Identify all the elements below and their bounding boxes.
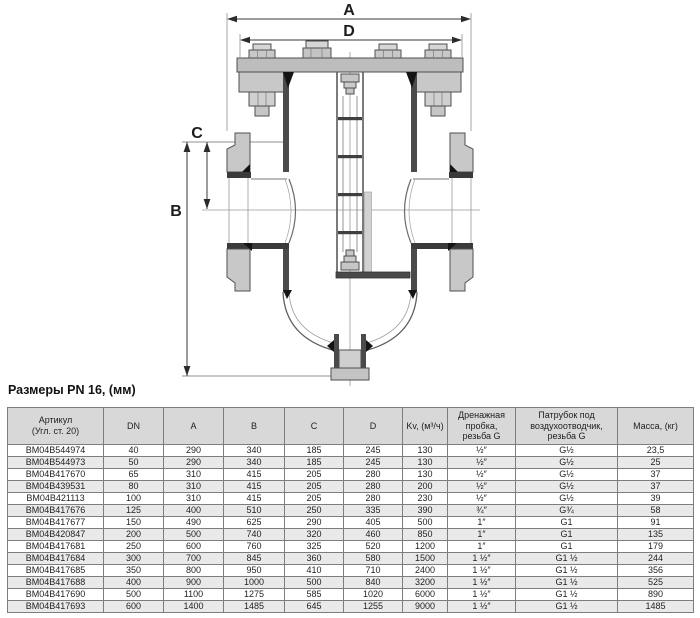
article-cell: BM04B417670 [8,469,104,481]
article-cell: BM04B420847 [8,529,104,541]
value-cell: 6000 [403,589,448,601]
table-row: BM04B41768430070084536058015001 ½″G1 ½24… [8,553,694,565]
value-cell: 135 [618,529,694,541]
value-cell: 1″ [448,529,516,541]
value-cell: 244 [618,553,694,565]
value-cell: 1000 [224,577,285,589]
value-cell: 710 [344,565,403,577]
value-cell: 185 [285,457,344,469]
dimensions-table: Артикул (Угл. ст. 20)DNABCDKv, (м³/ч)Дре… [7,407,694,613]
column-header: C [285,408,344,445]
value-cell: 1100 [164,589,224,601]
value-cell: 500 [285,577,344,589]
value-cell: 600 [164,541,224,553]
value-cell: 185 [285,445,344,457]
value-cell: 290 [285,517,344,529]
value-cell: 415 [224,493,285,505]
value-cell: 356 [618,565,694,577]
value-cell: 1400 [164,601,224,613]
table-row: BM04B41768125060076032552012001″G1179 [8,541,694,553]
article-cell: BM04B417690 [8,589,104,601]
value-cell: ½″ [448,469,516,481]
article-cell: BM04B421113 [8,493,104,505]
value-cell: 405 [344,517,403,529]
value-cell: 410 [285,565,344,577]
value-cell: 230 [403,493,448,505]
table-row: BM04B417676125400510250335390¾″G¾58 [8,505,694,517]
column-header: Патрубок под воздухоотводчик, резьба G [516,408,618,445]
table-title: Размеры PN 16, (мм) [8,383,136,397]
value-cell: 40 [104,445,164,457]
value-cell: 340 [224,457,285,469]
value-cell: 91 [618,517,694,529]
value-cell: 500 [164,529,224,541]
value-cell: G1 ½ [516,589,618,601]
value-cell: 1 ½″ [448,589,516,601]
value-cell: 130 [403,469,448,481]
value-cell: 1275 [224,589,285,601]
value-cell: 130 [403,445,448,457]
value-cell: 37 [618,481,694,493]
value-cell: 1020 [344,589,403,601]
column-header: D [344,408,403,445]
value-cell: 840 [344,577,403,589]
column-header: Масса, (кг) [618,408,694,445]
value-cell: 39 [618,493,694,505]
value-cell: 25 [618,457,694,469]
value-cell: 1500 [403,553,448,565]
value-cell: 400 [104,577,164,589]
value-cell: G1 ½ [516,565,618,577]
value-cell: 205 [285,493,344,505]
value-cell: 280 [344,493,403,505]
dim-label-d: D [343,23,355,40]
table-row: BM04B41768535080095041071024001 ½″G1 ½35… [8,565,694,577]
value-cell: 350 [104,565,164,577]
value-cell: 50 [104,457,164,469]
value-cell: 600 [104,601,164,613]
value-cell: 335 [344,505,403,517]
value-cell: G¾ [516,505,618,517]
value-cell: 500 [104,589,164,601]
article-cell: BM04B417677 [8,517,104,529]
value-cell: 130 [403,457,448,469]
value-cell: G1 [516,529,618,541]
value-cell: 900 [164,577,224,589]
article-cell: BM04B417693 [8,601,104,613]
value-cell: 460 [344,529,403,541]
column-header: DN [104,408,164,445]
cover-plate [237,58,463,72]
strainer-rod [336,72,410,278]
value-cell: 500 [403,517,448,529]
value-cell: 400 [164,505,224,517]
value-cell: G1 ½ [516,553,618,565]
value-cell: 290 [164,457,224,469]
value-cell: 415 [224,469,285,481]
value-cell: 490 [164,517,224,529]
value-cell: ½″ [448,445,516,457]
table-row: BM04B54497440290340185245130½″G½23,5 [8,445,694,457]
value-cell: 310 [164,481,224,493]
value-cell: 37 [618,469,694,481]
value-cell: 760 [224,541,285,553]
value-cell: 80 [104,481,164,493]
value-cell: ½″ [448,481,516,493]
table-row: BM04B4208472005007403204608501″G1135 [8,529,694,541]
table-row: BM04B417688400900100050084032001 ½″G1 ½5… [8,577,694,589]
value-cell: 58 [618,505,694,517]
value-cell: G½ [516,493,618,505]
value-cell: 625 [224,517,285,529]
value-cell: 9000 [403,601,448,613]
value-cell: 280 [344,481,403,493]
value-cell: 520 [344,541,403,553]
value-cell: 250 [285,505,344,517]
value-cell: 290 [164,445,224,457]
value-cell: 179 [618,541,694,553]
column-header: B [224,408,285,445]
value-cell: 205 [285,481,344,493]
value-cell: 2400 [403,565,448,577]
value-cell: G1 [516,541,618,553]
value-cell: ¾″ [448,505,516,517]
column-header: Дренажная пробка, резьба G [448,408,516,445]
article-cell: BM04B439531 [8,481,104,493]
column-header: A [164,408,224,445]
value-cell: 200 [403,481,448,493]
value-cell: 280 [344,469,403,481]
technical-drawing: A D B C [0,0,700,398]
column-header: Kv, (м³/ч) [403,408,448,445]
value-cell: 1″ [448,517,516,529]
air-vent-plug [303,41,331,58]
table-row: BM04B54497350290340185245130½″G½25 [8,457,694,469]
value-cell: 1 ½″ [448,601,516,613]
table-row: BM04B41769050011001275585102060001 ½″G1 … [8,589,694,601]
value-cell: 23,5 [618,445,694,457]
value-cell: 740 [224,529,285,541]
value-cell: 1485 [224,601,285,613]
value-cell: 100 [104,493,164,505]
value-cell: 150 [104,517,164,529]
value-cell: 1255 [344,601,403,613]
value-cell: 645 [285,601,344,613]
value-cell: 205 [285,469,344,481]
dim-label-a: A [343,2,355,19]
article-cell: BM04B544973 [8,457,104,469]
value-cell: 700 [164,553,224,565]
value-cell: 890 [618,589,694,601]
value-cell: 390 [403,505,448,517]
value-cell: 245 [344,457,403,469]
datasheet-page: A D B C [0,0,700,618]
value-cell: 250 [104,541,164,553]
value-cell: 1 ½″ [448,565,516,577]
dim-label-c: C [191,125,203,142]
value-cell: 310 [164,493,224,505]
value-cell: G1 ½ [516,601,618,613]
article-cell: BM04B417688 [8,577,104,589]
article-cell: BM04B417681 [8,541,104,553]
value-cell: 3200 [403,577,448,589]
dim-label-b: B [170,203,182,220]
value-cell: 525 [618,577,694,589]
table-row: BM04B41769360014001485645125590001 ½″G1 … [8,601,694,613]
value-cell: 850 [403,529,448,541]
value-cell: 125 [104,505,164,517]
value-cell: 1 ½″ [448,577,516,589]
table-row: BM04B421113100310415205280230½″G½39 [8,493,694,505]
value-cell: 510 [224,505,285,517]
value-cell: 845 [224,553,285,565]
value-cell: G1 [516,517,618,529]
article-cell: BM04B417684 [8,553,104,565]
value-cell: 1″ [448,541,516,553]
value-cell: 585 [285,589,344,601]
value-cell: 580 [344,553,403,565]
value-cell: ½″ [448,493,516,505]
article-cell: BM04B417685 [8,565,104,577]
value-cell: 340 [224,445,285,457]
table-body: BM04B54497440290340185245130½″G½23,5BM04… [8,445,694,613]
value-cell: 1 ½″ [448,553,516,565]
value-cell: 310 [164,469,224,481]
value-cell: G1 ½ [516,577,618,589]
table-header: Артикул (Угл. ст. 20)DNABCDKv, (м³/ч)Дре… [8,408,694,445]
value-cell: 300 [104,553,164,565]
value-cell: G½ [516,445,618,457]
value-cell: 200 [104,529,164,541]
article-cell: BM04B417676 [8,505,104,517]
value-cell: 325 [285,541,344,553]
value-cell: G½ [516,481,618,493]
value-cell: ½″ [448,457,516,469]
value-cell: G½ [516,469,618,481]
value-cell: 320 [285,529,344,541]
value-cell: 950 [224,565,285,577]
value-cell: 415 [224,481,285,493]
value-cell: 800 [164,565,224,577]
value-cell: 65 [104,469,164,481]
value-cell: 1485 [618,601,694,613]
column-header: Артикул (Угл. ст. 20) [8,408,104,445]
value-cell: 360 [285,553,344,565]
value-cell: 245 [344,445,403,457]
value-cell: G½ [516,457,618,469]
value-cell: 1200 [403,541,448,553]
table-row: BM04B41767065310415205280130½″G½37 [8,469,694,481]
table-row: BM04B43953180310415205280200½″G½37 [8,481,694,493]
dimension-c [204,142,211,209]
article-cell: BM04B544974 [8,445,104,457]
table-row: BM04B4176771504906252904055001″G191 [8,517,694,529]
